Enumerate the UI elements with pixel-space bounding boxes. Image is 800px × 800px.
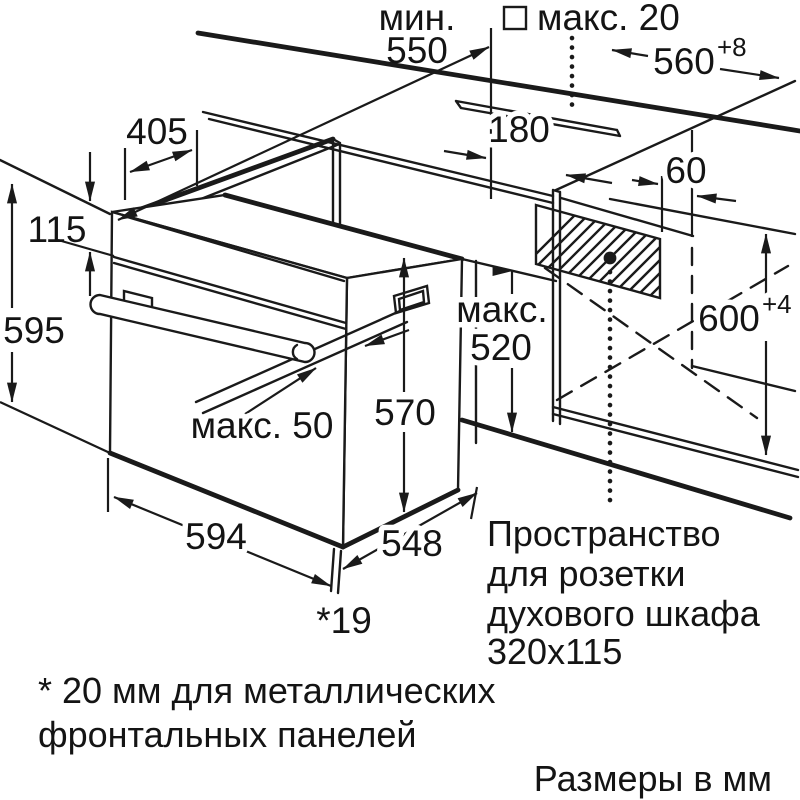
footnote-line1: * 20 мм для металлических (38, 670, 496, 711)
footnote-line2: фронтальных панелей (38, 714, 417, 755)
label-115: 115 (28, 209, 87, 250)
label-550: 550 (386, 30, 448, 71)
label-520: 520 (470, 327, 532, 368)
label-570: 570 (374, 392, 436, 433)
label-19: *19 (316, 600, 372, 641)
socket-note-line1: Пространство (487, 513, 721, 554)
label-maks-50: макс. 50 (191, 405, 334, 446)
label-594: 594 (185, 516, 247, 557)
label-405: 405 (126, 111, 188, 152)
socket-note-line3: духового шкафа (487, 593, 761, 634)
label-548: 548 (381, 523, 443, 564)
socket-point (604, 252, 617, 265)
diagram-canvas: мин. 550 макс. 20 560 +8 405 115 595 180… (0, 0, 800, 800)
label-maks: макс. (456, 289, 547, 330)
label-600-tolerance: +4 (762, 289, 792, 319)
label-hob-max-20: макс. 20 (537, 0, 680, 38)
socket-note-line2: для розетки (487, 553, 685, 594)
label-560-tolerance: +8 (717, 32, 747, 62)
label-595: 595 (3, 310, 65, 351)
label-600: 600 (698, 298, 760, 339)
label-180: 180 (488, 109, 550, 150)
label-560: 560 (653, 41, 715, 82)
socket-note-line4: 320x115 (487, 631, 622, 672)
oven-installation-diagram: мин. 550 макс. 20 560 +8 405 115 595 180… (0, 0, 800, 800)
units-note: Размеры в мм (534, 758, 772, 799)
label-60: 60 (665, 150, 706, 191)
